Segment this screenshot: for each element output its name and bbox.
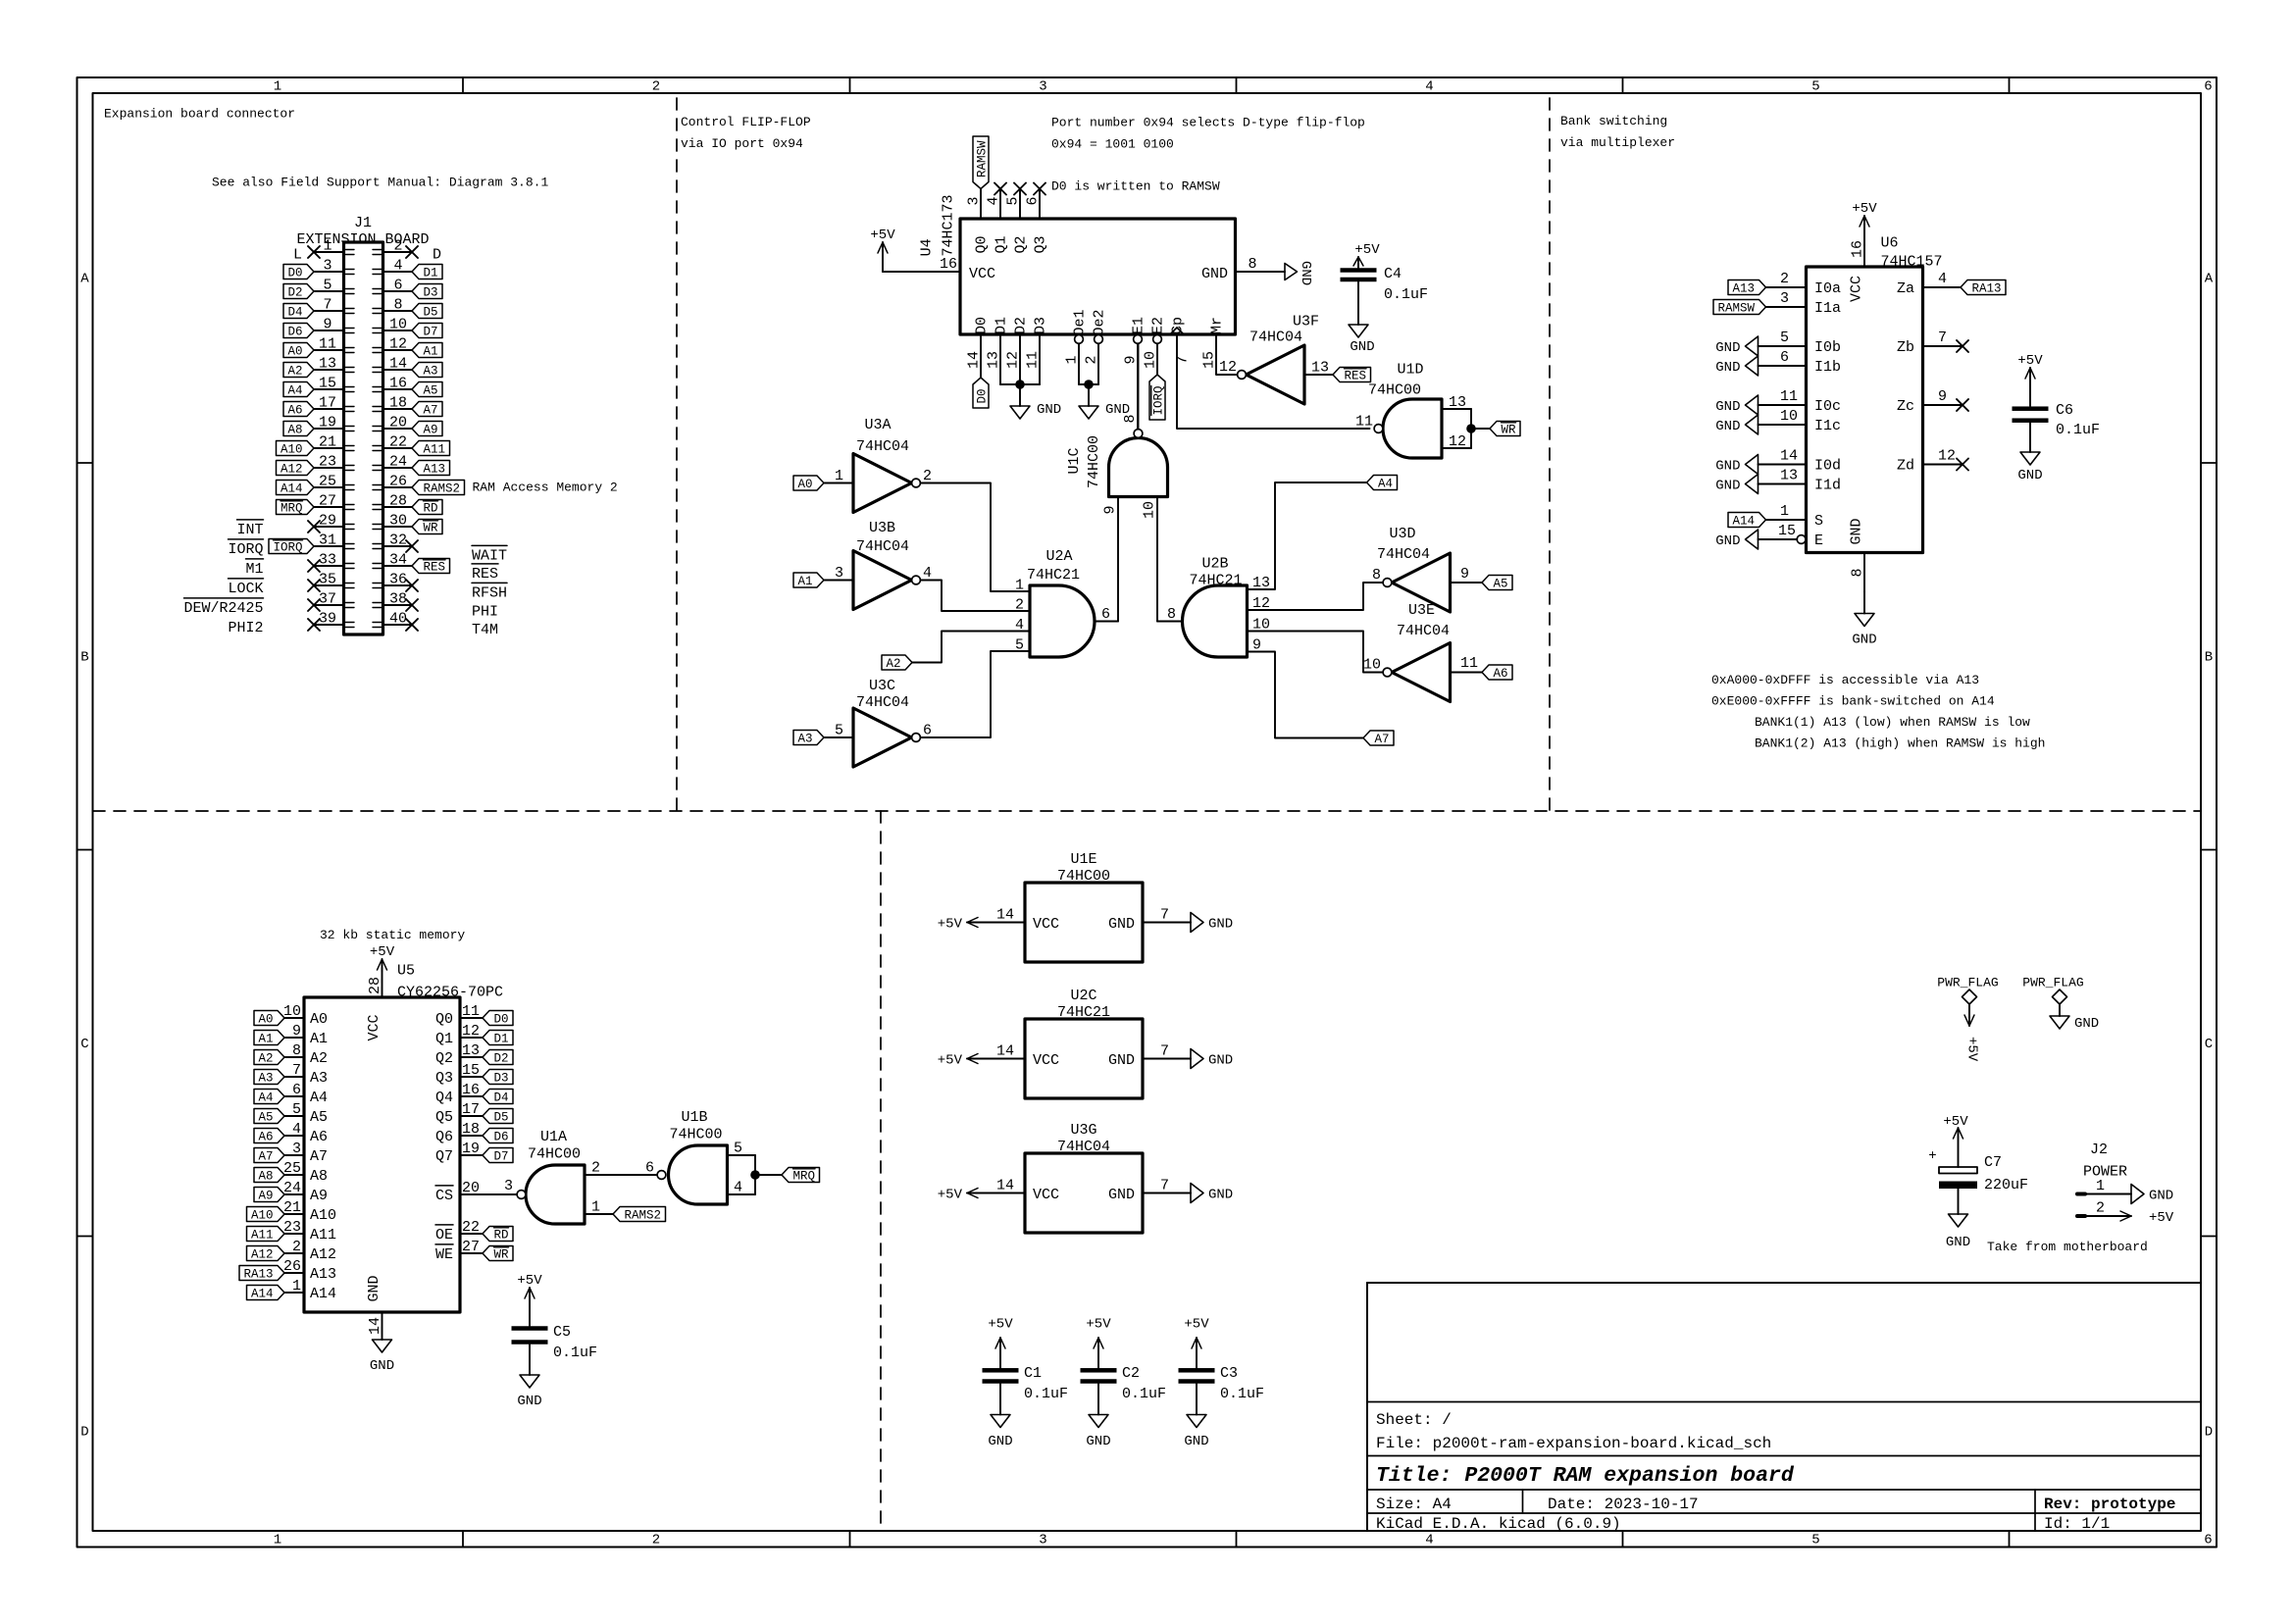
svg-text:WR: WR [1501, 423, 1516, 436]
svg-text:GND: GND [1108, 1052, 1135, 1069]
svg-text:4: 4 [292, 1121, 301, 1138]
svg-text:0.1uF: 0.1uF [1122, 1386, 1166, 1402]
svg-text:GND: GND [370, 1358, 394, 1374]
svg-text:A7: A7 [258, 1149, 273, 1163]
svg-text:12: 12 [1219, 359, 1237, 376]
svg-text:3: 3 [323, 258, 331, 275]
svg-text:File: p2000t-ram-expansion-boa: File: p2000t-ram-expansion-board.kicad_s… [1376, 1435, 1771, 1452]
svg-text:DEW/R2425: DEW/R2425 [183, 600, 263, 617]
svg-text:0.1uF: 0.1uF [1384, 286, 1428, 303]
svg-text:0.1uF: 0.1uF [2056, 422, 2100, 438]
svg-text:6: 6 [393, 278, 402, 294]
svg-text:A5: A5 [423, 383, 437, 397]
svg-text:A2: A2 [310, 1050, 328, 1067]
svg-text:via IO port 0x94: via IO port 0x94 [681, 136, 803, 151]
svg-text:21: 21 [319, 434, 336, 451]
svg-text:A3: A3 [310, 1070, 328, 1087]
svg-text:A11: A11 [251, 1228, 274, 1242]
svg-text:RA13: RA13 [243, 1267, 273, 1281]
svg-text:RD: RD [423, 501, 437, 515]
svg-text:Date: 2023-10-17: Date: 2023-10-17 [1548, 1496, 1699, 1513]
svg-text:D7: D7 [493, 1149, 508, 1163]
svg-text:2: 2 [1084, 355, 1100, 364]
svg-text:+5V: +5V [938, 917, 963, 933]
svg-text:E2: E2 [1150, 317, 1167, 334]
svg-text:D: D [433, 247, 441, 264]
svg-text:5: 5 [835, 723, 843, 739]
svg-text:WAIT: WAIT [472, 548, 507, 565]
svg-text:GND: GND [1852, 633, 1876, 648]
svg-text:U3A: U3A [864, 417, 891, 433]
svg-text:30: 30 [389, 513, 407, 530]
svg-text:1: 1 [1064, 355, 1081, 364]
svg-text:74HC00: 74HC00 [669, 1127, 722, 1143]
svg-text:74HC173: 74HC173 [941, 194, 957, 256]
svg-text:A6: A6 [310, 1129, 328, 1145]
svg-text:A12: A12 [310, 1246, 336, 1263]
svg-text:3: 3 [1780, 290, 1789, 307]
svg-text:21: 21 [283, 1199, 301, 1216]
svg-text:2: 2 [1780, 271, 1789, 287]
svg-text:+5V: +5V [988, 1317, 1013, 1333]
svg-text:8: 8 [1372, 567, 1381, 584]
svg-text:A10: A10 [251, 1208, 274, 1222]
svg-text:Expansion board connector: Expansion board connector [104, 107, 295, 122]
svg-text:GND: GND [988, 1434, 1012, 1449]
svg-text:6: 6 [645, 1160, 654, 1177]
svg-text:220uF: 220uF [1984, 1177, 2028, 1193]
svg-text:PWR_FLAG: PWR_FLAG [2022, 976, 2083, 990]
svg-text:D2: D2 [1013, 317, 1030, 334]
svg-text:5: 5 [1811, 79, 1819, 95]
svg-text:A8: A8 [258, 1169, 273, 1183]
svg-text:11: 11 [1460, 655, 1478, 672]
svg-text:+5V: +5V [1964, 1037, 1980, 1062]
svg-text:74HC00: 74HC00 [1368, 382, 1421, 399]
svg-text:C: C [80, 1037, 88, 1052]
svg-text:1: 1 [2096, 1178, 2105, 1194]
svg-text:+5V: +5V [370, 944, 395, 960]
svg-text:27: 27 [319, 493, 336, 510]
svg-text:U3E: U3E [1408, 602, 1435, 619]
svg-text:6: 6 [292, 1082, 301, 1098]
svg-text:B: B [2205, 650, 2213, 666]
svg-text:4: 4 [1015, 617, 1024, 634]
svg-text:10: 10 [1143, 351, 1159, 369]
svg-text:D1: D1 [994, 317, 1010, 334]
svg-text:1: 1 [274, 1533, 281, 1548]
svg-text:8: 8 [1850, 568, 1866, 577]
svg-text:Q0: Q0 [974, 235, 991, 253]
svg-text:D7: D7 [423, 325, 437, 338]
svg-text:19: 19 [319, 415, 336, 431]
svg-text:38: 38 [389, 591, 407, 608]
svg-text:D1: D1 [493, 1032, 508, 1045]
svg-text:U3D: U3D [1389, 526, 1415, 542]
svg-text:15: 15 [462, 1062, 480, 1079]
svg-text:A9: A9 [423, 423, 437, 436]
svg-text:D5: D5 [423, 305, 437, 319]
svg-text:C2: C2 [1122, 1365, 1140, 1382]
svg-text:+5V: +5V [938, 1053, 963, 1069]
svg-text:C5: C5 [553, 1324, 571, 1341]
svg-text:A0: A0 [258, 1012, 273, 1026]
svg-text:+5V: +5V [870, 228, 895, 243]
svg-text:RAM Access Memory 2: RAM Access Memory 2 [473, 481, 618, 495]
svg-text:11: 11 [1780, 388, 1798, 405]
svg-text:U5: U5 [397, 963, 415, 980]
svg-text:A13: A13 [310, 1266, 336, 1283]
svg-text:RAMSW: RAMSW [975, 140, 989, 178]
svg-text:A7: A7 [1374, 733, 1389, 746]
svg-text:VCC: VCC [1033, 1052, 1059, 1069]
svg-text:I1a: I1a [1814, 300, 1841, 317]
svg-text:BANK1(1) A13 (low) when RAMSW: BANK1(1) A13 (low) when RAMSW is low [1755, 715, 2030, 730]
svg-text:74HC00: 74HC00 [528, 1146, 581, 1163]
svg-text:25: 25 [283, 1160, 301, 1177]
svg-text:A4: A4 [310, 1090, 328, 1106]
svg-text:D3: D3 [1033, 317, 1049, 334]
svg-text:4: 4 [923, 565, 932, 582]
svg-text:3: 3 [292, 1141, 301, 1157]
svg-text:Q6: Q6 [435, 1129, 453, 1145]
svg-text:74HC04: 74HC04 [856, 538, 909, 555]
svg-text:WE: WE [435, 1246, 453, 1263]
svg-text:Take from motherboard: Take from motherboard [1987, 1240, 2148, 1254]
svg-text:D1: D1 [423, 266, 437, 279]
svg-text:4: 4 [1425, 1533, 1433, 1548]
svg-text:6: 6 [1025, 196, 1042, 205]
svg-text:Id: 1/1: Id: 1/1 [2044, 1515, 2110, 1533]
svg-text:3: 3 [966, 196, 983, 205]
svg-text:10: 10 [389, 317, 407, 333]
svg-text:RAMS2: RAMS2 [624, 1208, 661, 1222]
svg-text:GND: GND [366, 1275, 382, 1301]
svg-text:12: 12 [462, 1023, 480, 1040]
svg-text:20: 20 [389, 415, 407, 431]
svg-text:Size: A4: Size: A4 [1376, 1496, 1452, 1513]
svg-text:RFSH: RFSH [472, 585, 507, 602]
svg-text:17: 17 [462, 1101, 480, 1118]
svg-text:A: A [80, 272, 89, 287]
svg-text:Q5: Q5 [435, 1109, 453, 1126]
svg-text:23: 23 [319, 454, 336, 471]
svg-text:Q1: Q1 [435, 1031, 453, 1047]
svg-text:20: 20 [462, 1180, 480, 1196]
svg-text:A1: A1 [258, 1032, 273, 1045]
svg-text:A1: A1 [310, 1031, 328, 1047]
svg-text:C: C [2205, 1037, 2213, 1052]
svg-text:2: 2 [292, 1239, 301, 1255]
svg-text:Cp: Cp [1170, 317, 1187, 334]
svg-text:11: 11 [1025, 351, 1042, 369]
svg-text:+5V: +5V [517, 1273, 542, 1289]
svg-text:U3F: U3F [1293, 314, 1319, 330]
svg-text:6: 6 [923, 723, 932, 739]
svg-text:23: 23 [283, 1219, 301, 1236]
svg-text:40: 40 [389, 611, 407, 628]
svg-text:16: 16 [1850, 240, 1866, 258]
svg-text:Zb: Zb [1897, 339, 1914, 356]
svg-text:Q4: Q4 [435, 1090, 453, 1106]
svg-text:WR: WR [493, 1247, 509, 1261]
svg-text:EXTENSION BOARD: EXTENSION BOARD [296, 231, 429, 248]
svg-text:15: 15 [1201, 351, 1218, 369]
svg-text:A11: A11 [310, 1227, 336, 1243]
svg-text:A9: A9 [310, 1188, 328, 1204]
svg-text:26: 26 [283, 1258, 301, 1275]
svg-text:E1: E1 [1131, 317, 1147, 334]
svg-text:Bank switching: Bank switching [1560, 114, 1667, 128]
svg-text:+: + [1928, 1148, 1936, 1164]
svg-text:32 kb static memory: 32 kb static memory [320, 928, 465, 942]
svg-text:7: 7 [323, 297, 331, 314]
svg-text:18: 18 [389, 395, 407, 412]
svg-text:D0 is written to RAMSW: D0 is written to RAMSW [1051, 179, 1220, 194]
svg-text:14: 14 [966, 351, 983, 369]
svg-text:36: 36 [389, 572, 407, 588]
svg-text:4: 4 [1425, 79, 1433, 95]
svg-text:6: 6 [1101, 606, 1110, 623]
svg-text:D0: D0 [974, 317, 991, 334]
svg-text:12: 12 [389, 336, 407, 353]
svg-text:Q3: Q3 [1033, 235, 1049, 253]
svg-text:GND: GND [1184, 1434, 1208, 1449]
svg-text:27: 27 [462, 1239, 480, 1255]
svg-text:0.1uF: 0.1uF [1024, 1386, 1068, 1402]
svg-text:+5V: +5V [1943, 1114, 1968, 1130]
svg-text:A2: A2 [886, 657, 900, 671]
svg-text:3: 3 [835, 565, 843, 582]
svg-text:2: 2 [652, 79, 660, 95]
svg-text:A14: A14 [280, 482, 303, 495]
svg-text:12: 12 [1005, 351, 1022, 369]
svg-text:6: 6 [2204, 79, 2212, 95]
svg-text:6: 6 [2204, 1533, 2212, 1548]
svg-text:A1: A1 [423, 344, 437, 358]
svg-text:8: 8 [1167, 606, 1176, 623]
svg-text:2: 2 [652, 1533, 660, 1548]
svg-text:A4: A4 [258, 1091, 273, 1104]
svg-text:I1b: I1b [1814, 359, 1841, 376]
svg-text:D0: D0 [287, 266, 302, 279]
svg-text:A1: A1 [797, 575, 812, 588]
svg-text:GND: GND [2149, 1189, 2173, 1204]
svg-text:A8: A8 [287, 423, 302, 436]
svg-text:5: 5 [1005, 196, 1022, 205]
svg-text:26: 26 [389, 474, 407, 490]
svg-text:15: 15 [1778, 523, 1796, 539]
svg-text:1: 1 [1780, 503, 1789, 520]
svg-text:A13: A13 [1732, 281, 1755, 295]
svg-text:24: 24 [283, 1180, 301, 1196]
svg-text:PWR_FLAG: PWR_FLAG [1937, 976, 1998, 990]
svg-text:+5V: +5V [2017, 353, 2043, 369]
svg-text:4: 4 [734, 1180, 742, 1196]
svg-text:2: 2 [591, 1160, 600, 1177]
svg-text:C1: C1 [1024, 1365, 1042, 1382]
svg-text:M1: M1 [245, 561, 263, 578]
svg-text:0xE000-0xFFFF is bank-switched: 0xE000-0xFFFF is bank-switched on A14 [1711, 694, 1995, 709]
svg-text:GND: GND [1201, 266, 1228, 282]
svg-text:+5V: +5V [1184, 1317, 1209, 1333]
svg-text:2: 2 [393, 238, 402, 255]
svg-text:GND: GND [1037, 402, 1061, 418]
svg-text:D4: D4 [287, 305, 302, 319]
svg-text:GND: GND [1849, 518, 1865, 544]
svg-text:11: 11 [319, 336, 336, 353]
svg-text:A13: A13 [423, 462, 445, 476]
svg-text:via multiplexer: via multiplexer [1560, 135, 1675, 150]
svg-text:GND: GND [2017, 468, 2042, 483]
svg-text:A6: A6 [1493, 667, 1507, 681]
svg-text:33: 33 [319, 552, 336, 569]
svg-text:A7: A7 [423, 403, 437, 417]
svg-text:17: 17 [319, 395, 336, 412]
svg-text:D: D [80, 1425, 88, 1441]
svg-text:GND: GND [1715, 459, 1740, 475]
svg-text:GND: GND [1715, 479, 1740, 494]
svg-text:D5: D5 [493, 1110, 508, 1124]
svg-text:Za: Za [1897, 280, 1914, 297]
svg-text:8: 8 [393, 297, 402, 314]
svg-text:D4: D4 [493, 1091, 508, 1104]
svg-text:A10: A10 [280, 442, 303, 456]
svg-text:4: 4 [1938, 271, 1947, 287]
svg-text:U2A: U2A [1045, 548, 1072, 565]
svg-text:D2: D2 [493, 1051, 508, 1065]
svg-text:7: 7 [292, 1062, 301, 1079]
svg-text:D2: D2 [287, 285, 302, 299]
svg-text:RAMS2: RAMS2 [423, 482, 460, 495]
svg-text:74HC00: 74HC00 [1086, 435, 1102, 488]
svg-text:13: 13 [462, 1042, 480, 1059]
svg-text:C7: C7 [1984, 1154, 2002, 1171]
svg-text:22: 22 [462, 1219, 480, 1236]
svg-text:7: 7 [1938, 330, 1947, 346]
svg-text:U2C: U2C [1070, 988, 1096, 1004]
svg-text:74HC04: 74HC04 [1397, 623, 1450, 639]
svg-text:5: 5 [734, 1141, 742, 1157]
svg-text:U4: U4 [919, 238, 936, 256]
svg-text:A14: A14 [310, 1286, 336, 1302]
svg-text:S: S [1814, 513, 1823, 530]
svg-text:D3: D3 [493, 1071, 508, 1085]
svg-text:14: 14 [996, 907, 1014, 924]
svg-text:5: 5 [323, 278, 331, 294]
svg-text:GND: GND [1108, 1187, 1135, 1203]
svg-text:+5V: +5V [938, 1188, 963, 1203]
svg-text:A5: A5 [310, 1109, 328, 1126]
svg-text:11: 11 [462, 1003, 480, 1020]
svg-text:VCC: VCC [969, 266, 995, 282]
svg-text:B: B [80, 650, 88, 666]
svg-text:C6: C6 [2056, 402, 2073, 419]
svg-text:10: 10 [1363, 657, 1381, 674]
svg-text:Port number 0x94 selects D-typ: Port number 0x94 selects D-type flip-flo… [1051, 116, 1365, 130]
svg-text:BANK1(2) A13 (high) when RAMSW: BANK1(2) A13 (high) when RAMSW is high [1755, 736, 2045, 751]
svg-text:MRQ: MRQ [792, 1169, 815, 1183]
svg-text:16: 16 [389, 376, 407, 392]
svg-text:5: 5 [1780, 330, 1789, 346]
svg-text:39: 39 [319, 611, 336, 628]
svg-text:PHI: PHI [472, 604, 498, 621]
svg-text:A6: A6 [258, 1130, 273, 1143]
svg-text:74HC04: 74HC04 [1377, 546, 1430, 563]
svg-text:C3: C3 [1220, 1365, 1238, 1382]
svg-text:13: 13 [319, 356, 336, 373]
svg-text:7: 7 [1160, 907, 1169, 924]
svg-text:28: 28 [389, 493, 407, 510]
svg-text:3: 3 [504, 1178, 513, 1194]
svg-text:9: 9 [1252, 637, 1261, 654]
svg-text:See also Field Support Manual:: See also Field Support Manual: Diagram 3… [212, 176, 548, 190]
svg-text:4: 4 [393, 258, 402, 275]
svg-text:D6: D6 [493, 1130, 508, 1143]
svg-text:16: 16 [940, 256, 957, 273]
svg-text:A3: A3 [797, 732, 812, 745]
svg-text:Oe1: Oe1 [1072, 309, 1089, 335]
svg-text:E: E [1814, 533, 1823, 549]
svg-text:U2B: U2B [1201, 556, 1228, 573]
svg-text:A2: A2 [287, 364, 302, 378]
svg-text:A11: A11 [423, 442, 445, 456]
svg-text:LOCK: LOCK [228, 581, 263, 597]
svg-text:37: 37 [319, 591, 336, 608]
svg-text:12: 12 [1449, 433, 1466, 450]
svg-text:VCC: VCC [366, 1014, 382, 1040]
svg-text:RES: RES [1344, 369, 1366, 382]
svg-text:6: 6 [1780, 349, 1789, 366]
svg-text:13: 13 [1780, 468, 1798, 484]
svg-text:GND: GND [1715, 399, 1740, 415]
svg-text:IORQ: IORQ [273, 540, 302, 554]
svg-text:PHI2: PHI2 [228, 620, 263, 636]
svg-text:9: 9 [1123, 355, 1140, 364]
svg-text:10: 10 [1142, 501, 1158, 519]
svg-text:A5: A5 [1493, 577, 1507, 590]
svg-text:U3G: U3G [1070, 1122, 1096, 1139]
svg-text:+5V: +5V [1086, 1317, 1111, 1333]
svg-text:0xA000-0xDFFF is accessible vi: 0xA000-0xDFFF is accessible via A13 [1711, 673, 1979, 687]
svg-text:9: 9 [292, 1023, 301, 1040]
svg-text:4: 4 [986, 196, 1002, 205]
svg-text:A0: A0 [797, 478, 812, 491]
svg-text:A10: A10 [310, 1207, 336, 1224]
svg-text:35: 35 [319, 572, 336, 588]
svg-text:9: 9 [1102, 505, 1119, 514]
svg-text:13: 13 [986, 351, 1002, 369]
svg-text:J2: J2 [2090, 1142, 2108, 1158]
svg-text:9: 9 [1938, 388, 1947, 405]
svg-text:RD: RD [493, 1228, 508, 1242]
svg-text:GND: GND [1108, 916, 1135, 933]
svg-text:A7: A7 [310, 1148, 328, 1165]
svg-text:24: 24 [389, 454, 407, 471]
svg-text:U1E: U1E [1070, 851, 1096, 868]
svg-text:16: 16 [462, 1082, 480, 1098]
svg-text:CS: CS [435, 1188, 453, 1204]
svg-text:32: 32 [389, 533, 407, 549]
svg-text:GND: GND [2074, 1016, 2099, 1032]
svg-text:7: 7 [1160, 1178, 1169, 1194]
svg-text:14: 14 [996, 1043, 1014, 1060]
svg-text:POWER: POWER [2083, 1164, 2127, 1181]
svg-text:IORQ: IORQ [1151, 385, 1165, 415]
svg-text:22: 22 [389, 434, 407, 451]
svg-text:10: 10 [1780, 408, 1798, 425]
svg-text:GND: GND [1715, 533, 1740, 549]
